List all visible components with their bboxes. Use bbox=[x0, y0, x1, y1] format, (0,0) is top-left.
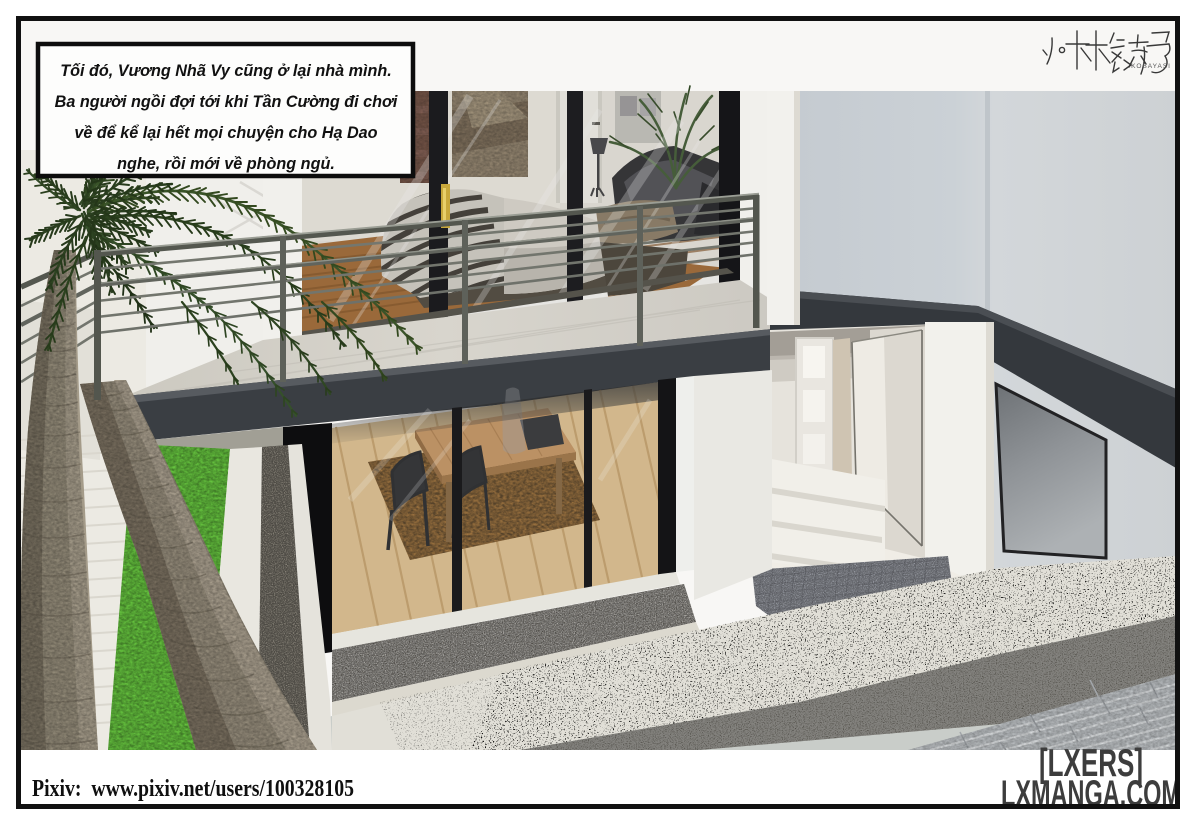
svg-text:KOBAYASI: KOBAYASI bbox=[1131, 63, 1171, 70]
svg-text:Tối đó, Vương Nhã Vy cũng ở lạ: Tối đó, Vương Nhã Vy cũng ở lại nhà mình… bbox=[60, 62, 392, 80]
svg-text:về để kể lại hết mọi chuyện ch: về để kể lại hết mọi chuyện cho Hạ Dao bbox=[74, 124, 377, 142]
svg-text:nghe, rồi mới về phòng ngủ.: nghe, rồi mới về phòng ngủ. bbox=[117, 155, 335, 173]
svg-text:Ba người ngồi đợi tới khi Tần: Ba người ngồi đợi tới khi Tần Cường đi c… bbox=[55, 93, 398, 111]
svg-text:Pixiv: www.pixiv.net/users/10: Pixiv: www.pixiv.net/users/100328105 bbox=[32, 776, 354, 802]
